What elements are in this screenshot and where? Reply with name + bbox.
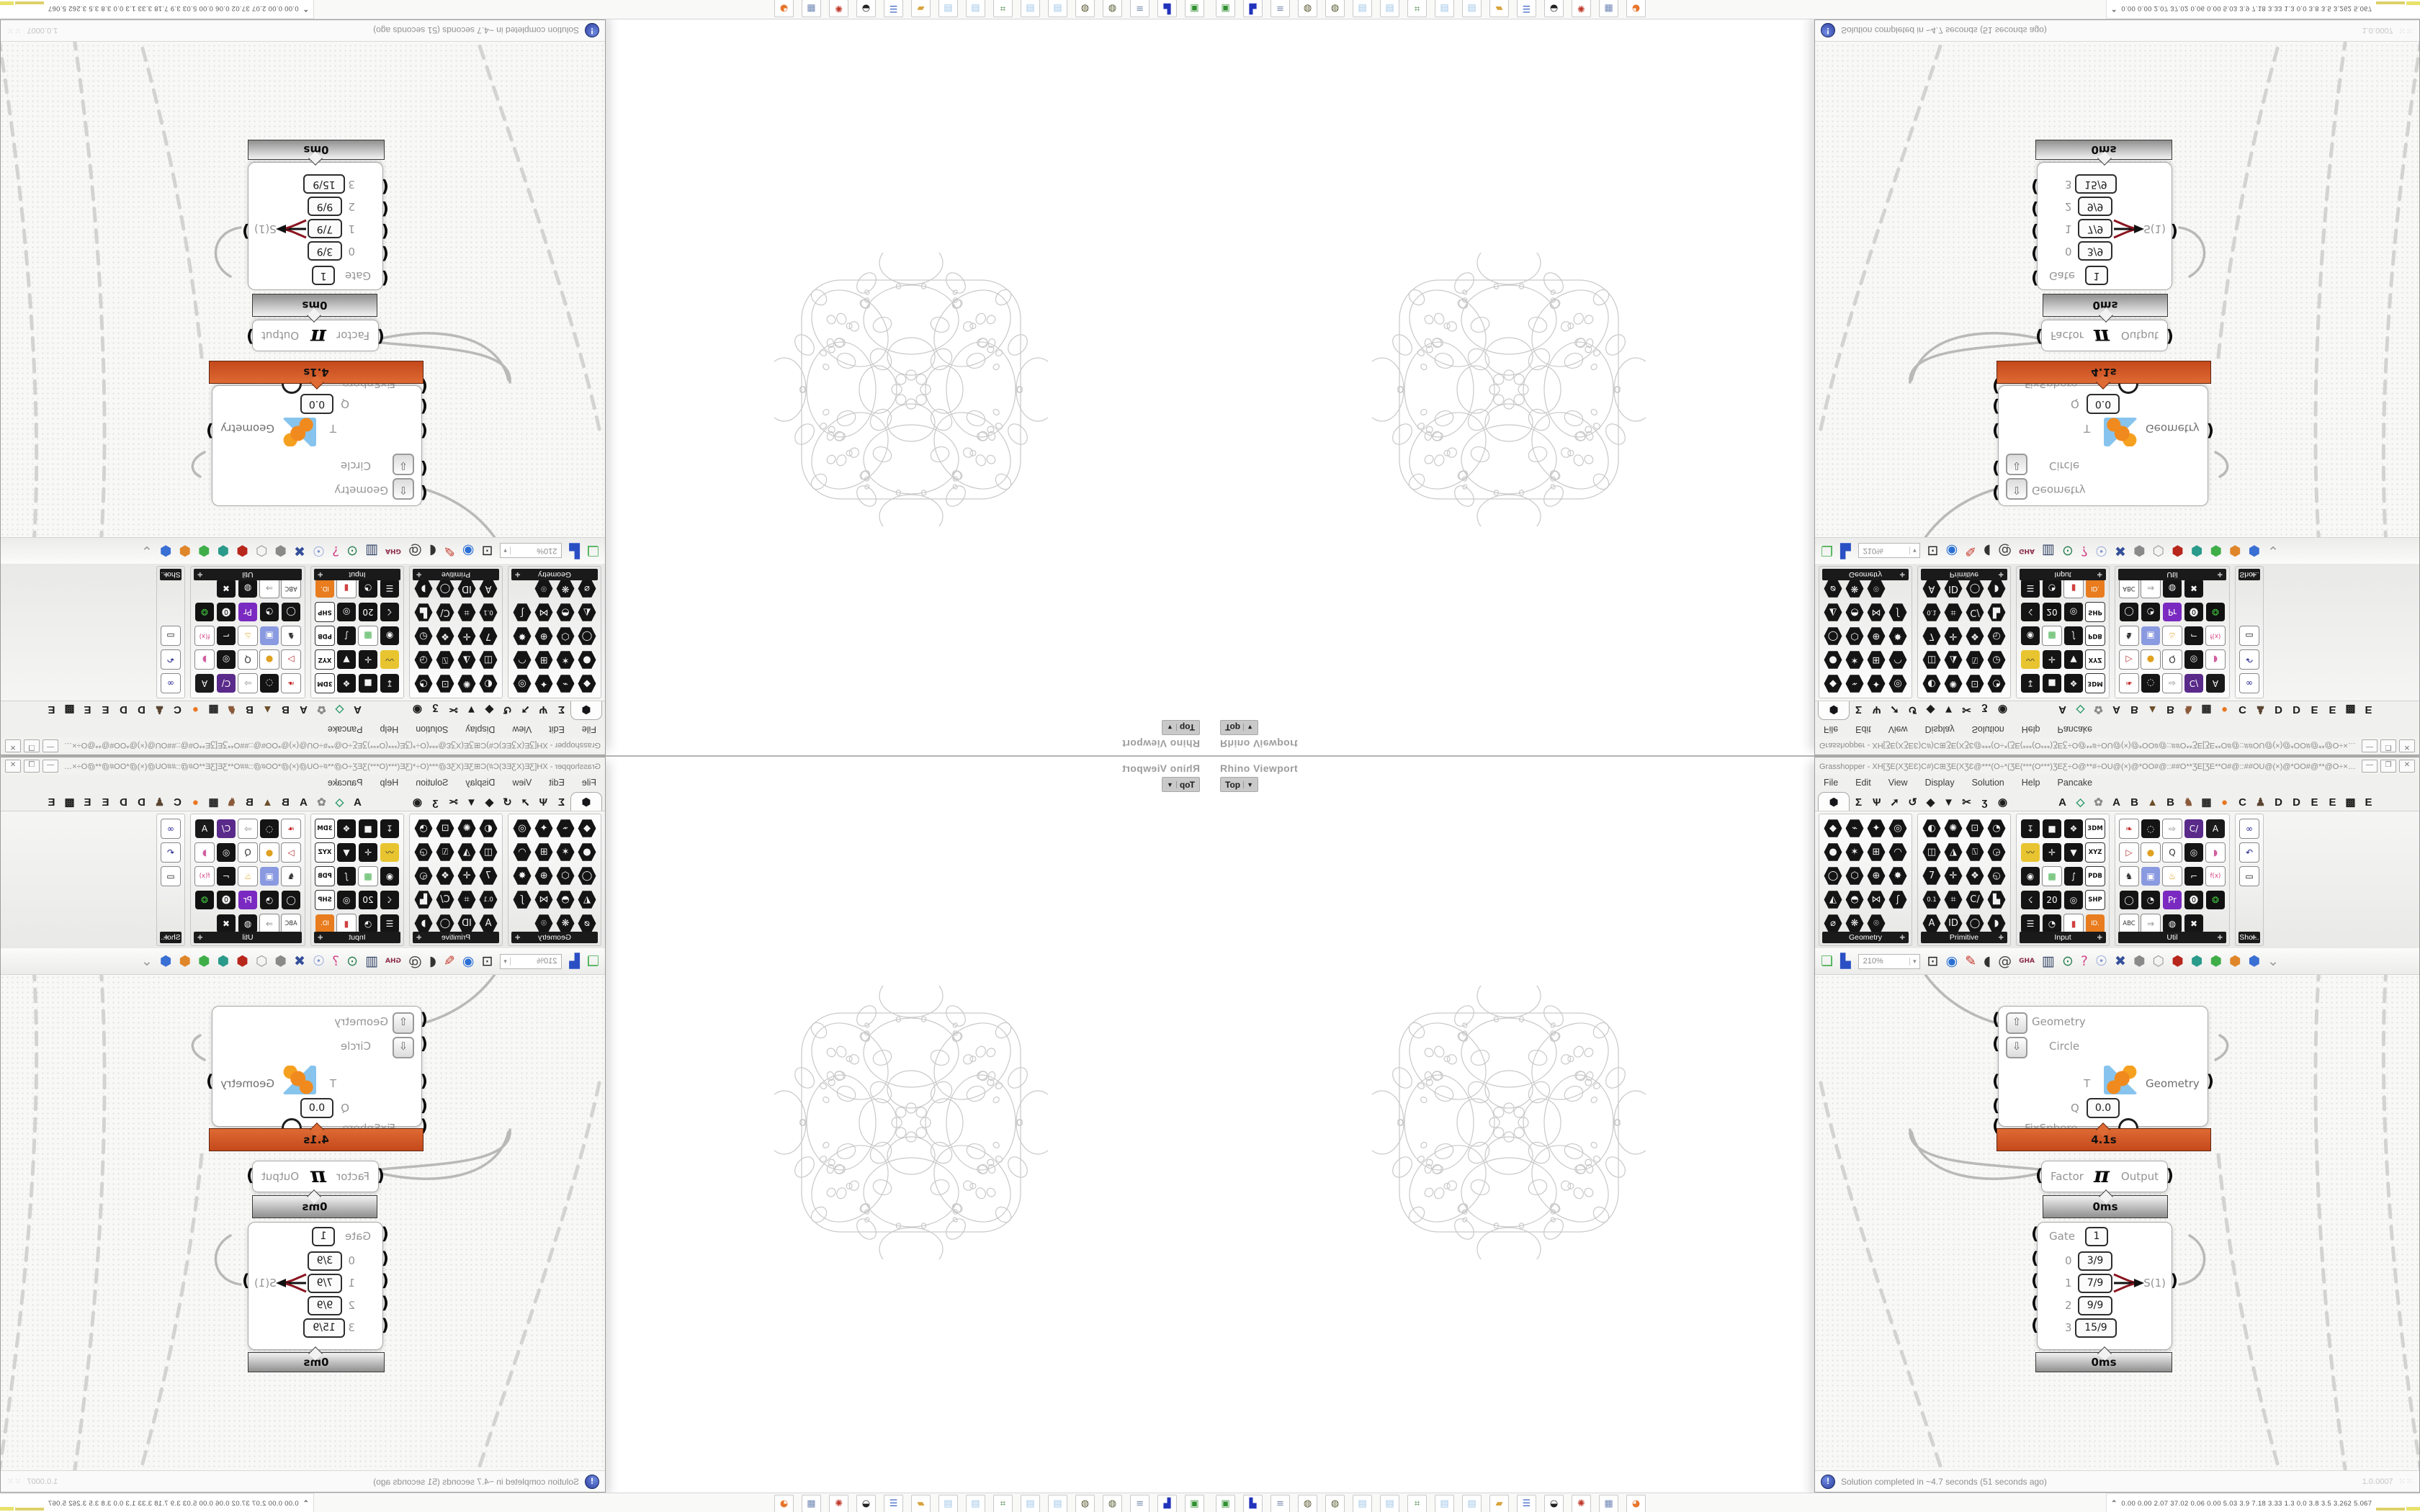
component-icon[interactable]: ⊡	[1966, 675, 1984, 693]
component-icon[interactable]: ID.	[2086, 914, 2105, 933]
tab-plugin-1[interactable]: ◇	[2071, 701, 2089, 716]
component-icon[interactable]: ◎	[2184, 843, 2203, 862]
gem-teal-icon[interactable]: ⬢	[2191, 953, 2203, 969]
tab-plugin-8[interactable]: ▦	[2197, 796, 2215, 811]
minimize-button[interactable]: —	[2362, 739, 2378, 752]
component-icon[interactable]: ◗	[1987, 580, 2006, 598]
component-icon[interactable]: ●	[2141, 650, 2161, 670]
gem-blue-icon[interactable]: ⬢	[160, 953, 172, 969]
notepad-icon[interactable]: ▤	[966, 0, 985, 17]
menu-item-edit[interactable]: Edit	[1855, 778, 1871, 788]
tab-plugin-17[interactable]: E	[2359, 701, 2378, 716]
component-icon[interactable]: ∫	[2064, 627, 2083, 646]
tab-plugin-0[interactable]: A	[2053, 796, 2071, 811]
fixsphere-component[interactable]: ⇧ ⇩ Geometry Circle T Geometry Q 0.0 Fix…	[1998, 1006, 2208, 1127]
component-icon[interactable]: ◗	[2205, 842, 2226, 863]
pi-component[interactable]: Factor π Output ( )	[252, 1161, 379, 1192]
list-value-box[interactable]: 7/9	[308, 1274, 342, 1293]
component-icon[interactable]: ↶	[2239, 842, 2259, 863]
tab-plugin-11[interactable]: ♟	[2251, 796, 2269, 811]
component-icon[interactable]: C/	[1966, 603, 1984, 622]
notepad-icon[interactable]: ▤	[1048, 1495, 1067, 1512]
ribbon-panel-label[interactable]: Geometry✚	[511, 932, 598, 943]
panel-expand-icon[interactable]: ✚	[1998, 571, 2004, 579]
component-icon[interactable]: ✺	[457, 819, 476, 838]
gate-list-component[interactable]: Gate 1 0 3/9 1 7/9 2 9/9 3 15/9	[2037, 162, 2172, 290]
component-icon[interactable]: ◯	[2120, 603, 2138, 622]
component-icon[interactable]: ID.	[2086, 580, 2105, 598]
zoom-extents-icon[interactable]: ⊡	[1927, 953, 1939, 969]
component-icon[interactable]: ◆	[1824, 675, 1842, 693]
zoom-level-dropdown[interactable]: 210% ▾	[500, 544, 562, 559]
component-icon[interactable]: ⊞	[534, 843, 553, 862]
component-icon[interactable]: ▩	[2042, 866, 2062, 886]
terminal-blue-icon[interactable]: ☰	[1517, 1495, 1536, 1512]
component-icon[interactable]: ▮	[2063, 579, 2084, 599]
runtime-balloon[interactable]: 4.1s	[209, 1128, 423, 1151]
q-value-box[interactable]: 0.0	[300, 394, 333, 414]
component-icon[interactable]: 7	[479, 867, 498, 886]
ribbon-panel-label[interactable]: Sho...✚	[160, 932, 181, 943]
ribbon-panel-label[interactable]: Geometry✚	[1822, 932, 1909, 943]
component-icon[interactable]: ❧	[281, 674, 301, 694]
component-icon[interactable]: ♞	[2119, 626, 2139, 647]
component-icon[interactable]: Pr	[238, 603, 257, 622]
monitor-green-icon[interactable]: ▣	[1185, 0, 1204, 17]
component-icon[interactable]: ⍂	[436, 843, 454, 862]
component-icon[interactable]: C/	[217, 675, 236, 693]
input-notch[interactable]: (	[2031, 1296, 2039, 1310]
workstation-icon[interactable]: ⌗	[993, 0, 1013, 17]
tab-plugin-10[interactable]: C	[2233, 796, 2251, 811]
tab-plugin-13[interactable]: D	[2287, 701, 2305, 716]
component-icon[interactable]: ⇒	[2141, 579, 2161, 599]
close-button[interactable]: ✕	[5, 760, 21, 773]
component-icon[interactable]: ABC	[281, 914, 301, 934]
tab-plugin-14[interactable]: E	[97, 796, 115, 811]
tab-plugin-17[interactable]: E	[2359, 796, 2378, 811]
component-icon[interactable]: ◎	[2184, 651, 2203, 670]
menu-item-display[interactable]: Display	[1925, 724, 1955, 734]
component-icon[interactable]: ◭	[578, 891, 596, 909]
gem-gray-icon[interactable]: ⬢	[274, 953, 287, 969]
tab-category-6[interactable]: ✂	[444, 796, 462, 811]
lightbulb-icon[interactable]: ☉	[2095, 953, 2107, 969]
component-icon[interactable]: 20	[359, 603, 377, 622]
component-icon[interactable]: ◔	[1987, 675, 2006, 693]
component-icon[interactable]: f(x)	[2205, 866, 2226, 886]
tab-plugin-4[interactable]: B	[2125, 796, 2143, 811]
component-icon[interactable]: ◯	[578, 867, 596, 886]
component-icon[interactable]: ▷	[281, 650, 301, 670]
input-notch[interactable]: (	[2035, 1169, 2043, 1183]
component-icon[interactable]: ☰	[380, 580, 399, 598]
component-icon[interactable]: ◎	[1888, 675, 1907, 693]
swirl-bw-icon[interactable]: ◒	[856, 0, 876, 17]
runtime-balloon[interactable]: 4.1s	[209, 361, 423, 384]
tab-plugin-10[interactable]: C	[2233, 701, 2251, 716]
component-icon[interactable]: ◯	[1966, 914, 1984, 933]
tab-category-6[interactable]: ✂	[1958, 796, 1976, 811]
monitor-green-icon[interactable]: ▣	[1216, 1495, 1235, 1512]
tab-plugin-10[interactable]: C	[169, 701, 187, 716]
gem-blue-icon[interactable]: ⬢	[2249, 543, 2261, 559]
menu-item-view[interactable]: View	[1888, 778, 1908, 788]
tab-category-8[interactable]: ◉	[1994, 701, 2012, 716]
bake-down-button[interactable]: ⇩	[393, 454, 414, 475]
ribbon-panel-label[interactable]: Primitive✚	[1921, 569, 2007, 580]
component-icon[interactable]: ✺	[457, 675, 476, 693]
component-icon[interactable]: ◵	[414, 627, 433, 646]
input-notch[interactable]: (	[381, 1251, 389, 1266]
component-icon[interactable]: ✸	[1888, 867, 1907, 886]
component-icon[interactable]: ▼	[337, 651, 356, 670]
tab-plugin-4[interactable]: B	[277, 701, 295, 716]
tab-category-6[interactable]: ✂	[444, 701, 462, 716]
list-value-box[interactable]: 15/9	[303, 1318, 345, 1338]
tab-category-3[interactable]: ↺	[498, 701, 516, 716]
list-value-box[interactable]: 15/9	[2075, 174, 2117, 194]
component-icon[interactable]: SHP	[315, 890, 335, 910]
grasshopper-canvas[interactable]: ⇧ ⇩ Geometry Circle T Geometry Q 0.0 Fix…	[1815, 975, 2419, 1473]
gha-badge-icon[interactable]: GHA	[385, 543, 401, 559]
gem-teal-icon[interactable]: ⬢	[2191, 543, 2203, 559]
maximize-button[interactable]: ❐	[24, 760, 40, 773]
component-icon[interactable]: ◉	[380, 867, 399, 886]
grasshopper-canvas[interactable]: ⇧ ⇩ Geometry Circle T Geometry Q 0.0 Fix…	[1, 39, 605, 537]
component-icon[interactable]: ❋	[556, 914, 575, 933]
component-icon[interactable]: ✶	[556, 651, 575, 670]
panel-expand-icon[interactable]: ✚	[318, 934, 323, 942]
bake-down-button[interactable]: ⇩	[2006, 1037, 2027, 1058]
component-icon[interactable]: ∞	[161, 819, 181, 839]
fixsphere-component[interactable]: ⇧ ⇩ Geometry Circle T Geometry Q 0.0 Fix…	[212, 1006, 422, 1127]
tab-params-selected[interactable]: ⬢	[1818, 792, 1850, 811]
boot-icon[interactable]: ◖	[1984, 953, 1991, 969]
component-icon[interactable]: ⌀	[578, 580, 596, 598]
component-icon[interactable]: ◔	[414, 819, 433, 838]
tab-plugin-6[interactable]: B	[2161, 701, 2179, 716]
new-file-icon[interactable]: ❏	[1821, 953, 1833, 969]
help-box-icon[interactable]: ?	[2081, 543, 2088, 559]
component-icon[interactable]: Q	[238, 842, 258, 863]
input-notch[interactable]: (	[381, 246, 389, 261]
component-icon[interactable]: ⍂	[1966, 651, 1984, 670]
component-icon[interactable]: ✦	[1867, 675, 1886, 693]
component-icon[interactable]: ✶	[1845, 651, 1864, 670]
tab-category-0[interactable]: Σ	[1850, 701, 1868, 716]
tab-plugin-16[interactable]: ▩	[60, 796, 79, 811]
gate-time-balloon[interactable]: 0ms	[2035, 1352, 2172, 1372]
component-icon[interactable]: ◌	[260, 675, 279, 693]
workstation-icon[interactable]: ⌗	[1407, 0, 1427, 17]
menu-item-solution[interactable]: Solution	[1972, 778, 2004, 788]
menu-item-help[interactable]: Help	[2022, 724, 2040, 734]
pi-component[interactable]: Factor π Output ( )	[252, 320, 379, 351]
component-icon[interactable]: ⌁	[556, 675, 575, 693]
component-icon[interactable]: ⓿	[2184, 891, 2203, 909]
component-icon[interactable]: ▙	[414, 603, 433, 622]
resize-grip-icon[interactable]: ⁙⁙	[2399, 1477, 2414, 1486]
list-value-box[interactable]: 9/9	[2078, 197, 2112, 216]
new-file-icon[interactable]: ❏	[587, 953, 599, 969]
component-icon[interactable]: ✦	[534, 675, 553, 693]
tab-params-selected[interactable]: ⬢	[570, 701, 602, 720]
component-icon[interactable]: ●	[2141, 842, 2161, 863]
tab-plugin-7[interactable]: ♞	[223, 701, 241, 716]
list-value-box[interactable]: 3/9	[308, 1251, 342, 1271]
input-notch[interactable]: (	[2031, 202, 2039, 216]
menu-item-display[interactable]: Display	[465, 778, 495, 788]
component-icon[interactable]: ⌗	[1944, 603, 1963, 622]
component-icon[interactable]: ❋	[556, 580, 575, 598]
tab-plugin-2[interactable]: ✿	[313, 796, 331, 811]
component-icon[interactable]: ▭	[161, 626, 181, 647]
tab-plugin-7[interactable]: ♞	[2179, 701, 2197, 716]
component-icon[interactable]: f(x)	[194, 626, 215, 647]
menu-item-pancake[interactable]: Pancake	[2057, 778, 2092, 788]
ribbon-panel-label[interactable]: Primitive✚	[1921, 932, 2007, 943]
component-icon[interactable]: ⊕	[534, 627, 553, 646]
at-icon[interactable]: @	[1998, 543, 2012, 559]
gem-white-icon[interactable]: ⬡	[2153, 543, 2165, 559]
component-icon[interactable]: ◫	[1922, 651, 1941, 670]
tab-plugin-11[interactable]: ♟	[151, 796, 169, 811]
list-value-box[interactable]: 7/9	[308, 219, 342, 238]
input-notch[interactable]: (	[381, 224, 389, 238]
minimize-button[interactable]: —	[2362, 760, 2378, 773]
component-icon[interactable]: ▣	[260, 627, 279, 646]
ribbon-panel-label[interactable]: Primitive✚	[413, 932, 499, 943]
viewport-projection-button[interactable]: Top ▼	[1162, 720, 1200, 735]
component-icon[interactable]: ▮	[336, 579, 357, 599]
component-icon[interactable]: XYZ	[2085, 650, 2105, 670]
component-icon[interactable]: A	[479, 914, 498, 933]
resize-grip-icon[interactable]: ⁙⁙	[6, 26, 21, 35]
component-icon[interactable]: ▙	[1987, 603, 2006, 622]
component-icon[interactable]: ☇	[2021, 891, 2040, 909]
component-icon[interactable]: ◌	[260, 819, 279, 838]
bake-up-button[interactable]: ⇧	[393, 1012, 414, 1034]
list-value-box[interactable]: 15/9	[2075, 1318, 2117, 1338]
calculator-icon[interactable]: ▦	[1599, 0, 1618, 17]
component-icon[interactable]: ∫	[337, 867, 356, 886]
component-icon[interactable]: f(x)	[2205, 626, 2226, 647]
swirl-bw-icon[interactable]: ◒	[856, 1495, 876, 1512]
component-icon[interactable]: ⇨	[238, 819, 258, 839]
panel-expand-icon[interactable]: ✚	[515, 934, 521, 942]
gem-red-icon[interactable]: ⬢	[236, 953, 248, 969]
component-icon[interactable]: 20	[2043, 603, 2061, 622]
firefox-icon[interactable]: ◕	[1626, 0, 1646, 17]
gem-gray-icon[interactable]: ⬢	[274, 543, 287, 559]
component-icon[interactable]: ◎	[513, 819, 532, 838]
zoom-level-dropdown[interactable]: 210% ▾	[1858, 954, 1920, 969]
component-icon[interactable]: ❖	[2064, 819, 2083, 838]
component-icon[interactable]: ✖	[2184, 914, 2203, 933]
grasshopper-titlebar[interactable]: Grasshopper - XH[ƷE(XƷEƐ)C#)C⊞ƷE(XƷƐ@***…	[1, 737, 605, 755]
tab-params-selected[interactable]: ⬢	[1818, 701, 1850, 720]
ribbon-panel-label[interactable]: Input✚	[2020, 569, 2106, 580]
component-icon[interactable]: 〰	[2021, 651, 2040, 670]
component-icon[interactable]: ◠	[513, 843, 532, 862]
tab-category-8[interactable]: ◉	[408, 701, 426, 716]
tab-category-1[interactable]: Ѱ	[534, 701, 552, 716]
component-icon[interactable]: C/	[436, 603, 454, 622]
component-icon[interactable]: ⇒	[259, 914, 279, 934]
gate-time-balloon[interactable]: 0ms	[2035, 140, 2172, 160]
component-icon[interactable]: ❂	[195, 891, 214, 909]
component-icon[interactable]: ▣	[260, 867, 279, 886]
tab-plugin-3[interactable]: A	[295, 701, 313, 716]
lightbulb-icon[interactable]: ☉	[2095, 543, 2107, 559]
component-icon[interactable]: ◮	[1944, 651, 1963, 670]
component-icon[interactable]: ∞	[2239, 674, 2259, 694]
gem-teal-icon[interactable]: ⬢	[218, 543, 230, 559]
at-icon[interactable]: @	[408, 953, 422, 969]
component-icon[interactable]: XYZ	[315, 842, 335, 863]
component-icon[interactable]: ☰	[2021, 914, 2040, 933]
component-icon[interactable]: ♨	[238, 866, 258, 886]
boot-icon[interactable]: ◖	[429, 953, 436, 969]
component-icon[interactable]: ↧	[380, 675, 399, 693]
component-icon[interactable]: ◔	[260, 891, 279, 909]
swirl-bw-icon[interactable]: ◒	[1544, 1495, 1564, 1512]
component-icon[interactable]: ⊡	[436, 819, 454, 838]
zoom-extents-icon[interactable]: ⊡	[1927, 543, 1939, 559]
component-icon[interactable]: ◉	[2021, 867, 2040, 886]
component-icon[interactable]: ↶	[161, 842, 181, 863]
input-notch[interactable]: (	[1992, 485, 2000, 500]
tab-plugin-6[interactable]: B	[241, 701, 259, 716]
panel-expand-icon[interactable]: ✚	[416, 934, 422, 942]
component-icon[interactable]: ID	[457, 580, 476, 598]
terminal-blue-icon[interactable]: ☰	[1517, 0, 1536, 17]
input-notch[interactable]: (	[381, 1274, 389, 1288]
gate-list-component[interactable]: Gate 1 0 3/9 1 7/9 2 9/9 3 15/9	[248, 1222, 383, 1350]
tab-category-8[interactable]: ◉	[1994, 796, 2012, 811]
gear-red-icon[interactable]: ✺	[829, 0, 848, 17]
component-icon[interactable]: ▭	[2239, 626, 2259, 647]
pi-time-balloon[interactable]: 0ms	[2043, 294, 2168, 317]
component-icon[interactable]: ◶	[1987, 651, 2006, 670]
component-icon[interactable]: ❖	[337, 819, 356, 838]
tab-plugin-5[interactable]: ▲	[2143, 701, 2161, 716]
component-icon[interactable]: ●	[259, 842, 279, 863]
component-icon[interactable]: A	[195, 675, 214, 693]
minimize-button[interactable]: —	[42, 760, 58, 773]
component-icon[interactable]: ⊕	[1867, 867, 1886, 886]
tab-plugin-15[interactable]: E	[79, 796, 97, 811]
fixsphere-component[interactable]: ⇧ ⇩ Geometry Circle T Geometry Q 0.0 Fix…	[1998, 385, 2208, 506]
input-notch[interactable]: (	[420, 423, 428, 438]
globe-icon[interactable]: ◍	[1075, 1495, 1095, 1512]
at-icon[interactable]: @	[408, 543, 422, 559]
menu-item-help[interactable]: Help	[380, 778, 399, 788]
component-icon[interactable]: Pr	[238, 891, 257, 909]
component-icon[interactable]: ⬡	[556, 627, 575, 646]
component-icon[interactable]: ▣	[2141, 627, 2160, 646]
crossed-wires-icon[interactable]: ✖	[294, 953, 305, 969]
component-icon[interactable]: ◎	[513, 675, 532, 693]
toolbar-grip-icon[interactable]: ⌄	[141, 543, 153, 559]
gem-red-icon[interactable]: ⬢	[236, 543, 248, 559]
menu-item-edit[interactable]: Edit	[549, 724, 565, 734]
component-icon[interactable]: ☰	[2021, 580, 2040, 598]
input-notch[interactable]: (	[377, 1169, 385, 1183]
component-icon[interactable]: ⊕	[534, 867, 553, 886]
component-icon[interactable]: ⇨	[2162, 674, 2182, 694]
component-icon[interactable]: PDB	[2085, 626, 2105, 647]
menu-item-view[interactable]: View	[1888, 724, 1908, 734]
component-icon[interactable]: ✖	[217, 580, 236, 598]
tab-plugin-11[interactable]: ♟	[151, 701, 169, 716]
input-notch[interactable]: (	[420, 1099, 428, 1113]
magnifier-dollar-icon[interactable]: ⊙	[346, 953, 358, 969]
component-icon[interactable]: ●	[1824, 651, 1842, 670]
component-icon[interactable]: ⋈	[534, 891, 553, 909]
component-icon[interactable]: ◫	[1922, 843, 1941, 862]
component-icon[interactable]: ◓	[1845, 603, 1864, 622]
ribbon-panel-label[interactable]: Geometry✚	[1822, 569, 1909, 580]
component-icon[interactable]: ◠	[513, 651, 532, 670]
component-icon[interactable]: ●	[1824, 843, 1842, 862]
input-notch[interactable]: (	[381, 1227, 389, 1241]
component-icon[interactable]: ID.	[315, 914, 334, 933]
component-icon[interactable]: SHP	[2085, 890, 2105, 910]
pi-component[interactable]: Factor π Output ( )	[2041, 320, 2168, 351]
gem-blue-icon[interactable]: ⬢	[2249, 953, 2261, 969]
input-notch[interactable]: (	[2031, 246, 2039, 261]
tab-plugin-5[interactable]: ▲	[259, 796, 277, 811]
magnifier-dollar-icon[interactable]: ⊙	[2062, 953, 2074, 969]
globe-icon[interactable]: ◍	[1103, 0, 1122, 17]
zoom-extents-icon[interactable]: ⊡	[481, 543, 493, 559]
browser-icon[interactable]: ▥	[365, 543, 378, 559]
component-icon[interactable]: ◭	[578, 603, 596, 622]
gha-badge-icon[interactable]: GHA	[2019, 953, 2035, 969]
component-icon[interactable]: ⌗	[457, 891, 476, 909]
folder-icon[interactable]: ▰	[911, 1495, 931, 1512]
component-icon[interactable]: ◮	[1944, 843, 1963, 862]
component-icon[interactable]: ◔	[359, 580, 377, 598]
tab-category-7[interactable]: ʒ	[1976, 701, 1994, 716]
component-icon[interactable]: ◶	[414, 651, 433, 670]
component-icon[interactable]: ◉	[380, 627, 399, 646]
component-icon[interactable]: ◵	[414, 867, 433, 886]
component-icon[interactable]: ✛	[359, 651, 377, 670]
component-icon[interactable]: ✦	[1867, 819, 1886, 838]
component-icon[interactable]: ◫	[479, 651, 498, 670]
output-notch[interactable]: )	[2206, 423, 2214, 438]
maximize-button[interactable]: ❐	[24, 739, 40, 752]
component-icon[interactable]: A	[479, 580, 498, 598]
component-icon[interactable]: ▩	[358, 866, 378, 886]
tab-plugin-2[interactable]: ✿	[2089, 796, 2107, 811]
component-icon[interactable]: ⊕	[1867, 627, 1886, 646]
gem-gray-icon[interactable]: ⬢	[2133, 543, 2146, 559]
component-icon[interactable]: ⬡	[1845, 627, 1864, 646]
component-icon[interactable]: ✖	[217, 914, 236, 933]
tab-category-2[interactable]: ➚	[1886, 701, 1904, 716]
component-icon[interactable]: ❋	[1845, 914, 1864, 933]
floppy-64-icon[interactable]: ▙	[1157, 0, 1177, 17]
tab-category-5[interactable]: ▼	[1940, 701, 1958, 716]
component-icon[interactable]: ◯	[282, 891, 300, 909]
bake-up-button[interactable]: ⇧	[2006, 478, 2027, 500]
ribbon-panel-label[interactable]: Util✚	[2118, 932, 2226, 943]
sketch-pen-icon[interactable]: ✎	[444, 953, 455, 969]
